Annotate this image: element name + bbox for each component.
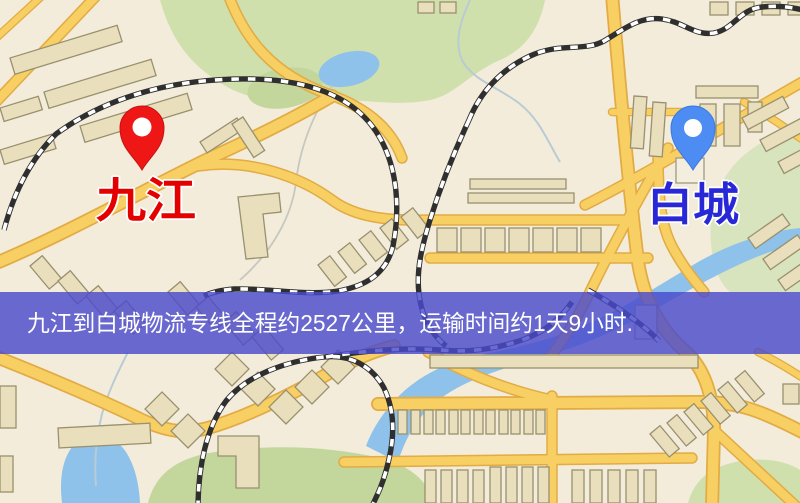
building	[557, 228, 577, 252]
building	[470, 179, 566, 189]
destination-label: 白城	[647, 180, 739, 230]
building	[440, 2, 456, 13]
building	[437, 228, 457, 252]
building	[485, 228, 505, 252]
destination-pin-hole	[684, 119, 702, 137]
building	[425, 470, 436, 503]
building	[509, 228, 529, 252]
building	[533, 228, 553, 252]
building	[398, 410, 407, 434]
building	[449, 410, 458, 434]
route-banner: 九江到白城物流专线全程约2527公里，运输时间约1天9小时.	[0, 292, 800, 354]
origin-pin-hole	[133, 118, 152, 137]
building	[461, 410, 470, 434]
building	[499, 410, 508, 434]
building	[486, 410, 495, 434]
building	[590, 470, 602, 503]
building	[436, 410, 445, 434]
building	[630, 96, 647, 149]
building	[783, 384, 799, 404]
building	[418, 2, 434, 13]
map-canvas: 九江 白城 九江到白城物流专线全程约2527公里，运输时间约1天9小时.	[0, 0, 800, 503]
building	[524, 410, 533, 434]
building	[58, 423, 151, 448]
building	[644, 470, 656, 503]
building	[0, 386, 16, 428]
building	[572, 470, 584, 503]
building	[724, 104, 740, 146]
building	[461, 228, 481, 252]
banner-text: 九江到白城物流专线全程约2527公里，运输时间约1天9小时.	[27, 310, 633, 336]
building	[457, 470, 468, 503]
building	[511, 410, 520, 434]
building	[473, 470, 484, 503]
building	[474, 410, 483, 434]
building	[522, 467, 533, 503]
building	[468, 193, 574, 203]
building	[710, 2, 728, 15]
building	[430, 355, 698, 368]
building	[411, 410, 420, 434]
origin-label: 九江	[96, 176, 196, 228]
building	[626, 470, 638, 503]
logistics-route-map-page: 九江 白城 九江到白城物流专线全程约2527公里，运输时间约1天9小时.	[0, 0, 800, 503]
building	[696, 86, 758, 98]
building	[581, 228, 601, 252]
building	[424, 410, 433, 434]
building	[536, 410, 545, 434]
building	[490, 467, 501, 503]
building	[0, 456, 13, 492]
building	[441, 470, 452, 503]
building	[506, 467, 517, 503]
building	[538, 467, 549, 503]
building	[608, 470, 620, 503]
